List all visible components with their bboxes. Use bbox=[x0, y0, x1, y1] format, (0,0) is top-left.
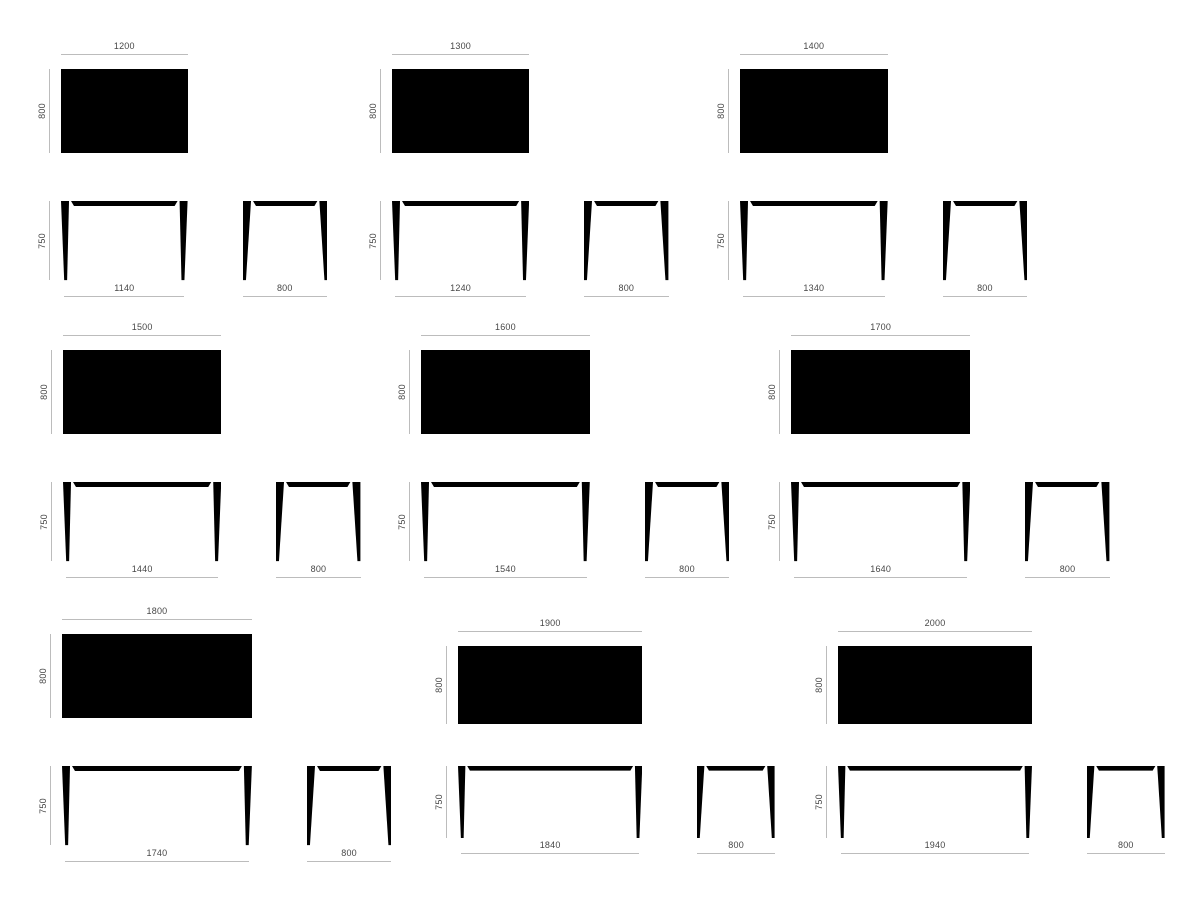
side-width-label: 800 bbox=[645, 564, 729, 575]
dimension-line bbox=[943, 296, 1027, 297]
side-width-dimension: 800 bbox=[276, 564, 360, 578]
tabletop-plan bbox=[392, 69, 529, 153]
top-width-dimension: 1400 bbox=[740, 41, 888, 55]
tabletop-plan bbox=[62, 634, 252, 718]
left-leg bbox=[1087, 766, 1094, 839]
top-depth-label: 800 bbox=[37, 103, 47, 119]
right-leg bbox=[383, 766, 391, 845]
side-elevation-drawing bbox=[307, 766, 391, 845]
base-width-dimension: 1340 bbox=[743, 283, 884, 297]
dimension-line bbox=[841, 853, 1029, 854]
side-elevation-drawing bbox=[1025, 482, 1109, 561]
tabletop-edge bbox=[253, 201, 317, 206]
top-depth-label: 800 bbox=[716, 103, 726, 119]
tabletop-plan bbox=[421, 350, 590, 434]
tabletop-plan bbox=[63, 350, 221, 434]
dimension-line bbox=[63, 335, 221, 336]
front-view: 7501740 bbox=[62, 766, 252, 861]
left-leg bbox=[740, 201, 748, 280]
left-leg bbox=[243, 201, 251, 280]
dimension-line bbox=[51, 350, 52, 434]
left-leg bbox=[838, 766, 845, 839]
tabletop-edge bbox=[467, 766, 633, 771]
side-width-label: 800 bbox=[697, 840, 775, 851]
dimension-line bbox=[65, 861, 249, 862]
dimension-line bbox=[49, 69, 50, 153]
top-view: 800 bbox=[62, 634, 252, 718]
side-width-dimension: 800 bbox=[645, 564, 729, 578]
side-view: 800 bbox=[276, 482, 360, 577]
dimension-line bbox=[380, 69, 381, 153]
table-1300-group: 13008007501240800 bbox=[366, 41, 669, 297]
side-elevation-drawing bbox=[645, 482, 729, 561]
base-width-label: 1540 bbox=[424, 564, 587, 575]
top-width-label: 1400 bbox=[740, 41, 888, 52]
side-width-label: 800 bbox=[307, 848, 391, 859]
top-width-label: 1900 bbox=[458, 618, 642, 629]
height-dimension: 750 bbox=[395, 482, 421, 561]
dimension-line bbox=[409, 482, 410, 561]
base-width-label: 1740 bbox=[65, 848, 249, 859]
right-leg bbox=[962, 482, 970, 561]
side-width-dimension: 800 bbox=[1087, 840, 1165, 854]
top-depth-label: 800 bbox=[397, 384, 407, 400]
height-label: 750 bbox=[397, 514, 407, 530]
front-elevation-drawing bbox=[392, 201, 529, 280]
height-label: 750 bbox=[37, 233, 47, 249]
dimension-line bbox=[50, 766, 51, 845]
top-depth-dimension: 800 bbox=[36, 634, 62, 718]
top-depth-dimension: 800 bbox=[812, 646, 838, 724]
top-width-dimension: 1500 bbox=[63, 322, 221, 336]
top-depth-dimension: 800 bbox=[366, 69, 392, 153]
base-width-dimension: 1840 bbox=[461, 840, 640, 854]
top-width-label: 1800 bbox=[62, 606, 252, 617]
tabletop-edge bbox=[431, 482, 580, 487]
top-depth-label: 800 bbox=[368, 103, 378, 119]
top-view: 800 bbox=[740, 69, 888, 153]
tabletop-edge bbox=[72, 766, 242, 771]
tabletop-plan bbox=[740, 69, 888, 153]
top-width-label: 1300 bbox=[392, 41, 529, 52]
dimension-line bbox=[50, 634, 51, 718]
dimension-line bbox=[794, 577, 967, 578]
right-leg bbox=[721, 482, 729, 561]
top-width-dimension: 1900 bbox=[458, 618, 642, 632]
height-dimension: 750 bbox=[36, 766, 62, 845]
base-width-label: 1340 bbox=[743, 283, 884, 294]
height-label: 750 bbox=[814, 794, 824, 810]
side-width-dimension: 800 bbox=[943, 283, 1027, 297]
top-view: 800 bbox=[421, 350, 590, 434]
base-width-dimension: 1140 bbox=[64, 283, 184, 297]
top-width-dimension: 2000 bbox=[838, 618, 1032, 632]
top-width-label: 1700 bbox=[791, 322, 970, 333]
dimension-line bbox=[458, 631, 642, 632]
front-view: 7501340 bbox=[740, 201, 888, 296]
dimension-line bbox=[61, 54, 188, 55]
side-width-dimension: 800 bbox=[697, 840, 775, 854]
top-depth-label: 800 bbox=[39, 384, 49, 400]
dimension-line bbox=[740, 54, 888, 55]
left-leg bbox=[392, 201, 400, 280]
height-dimension: 750 bbox=[765, 482, 791, 561]
table-1600-group: 16008007501540800 bbox=[395, 322, 729, 578]
right-leg bbox=[353, 482, 361, 561]
right-leg bbox=[180, 201, 188, 280]
dimension-line bbox=[791, 335, 970, 336]
dimension-line bbox=[66, 577, 218, 578]
top-depth-dimension: 800 bbox=[37, 350, 63, 434]
front-elevation-drawing bbox=[63, 482, 221, 561]
top-view: 800 bbox=[791, 350, 970, 434]
right-leg bbox=[635, 766, 642, 839]
dimension-line bbox=[838, 631, 1032, 632]
right-leg bbox=[1102, 482, 1110, 561]
left-leg bbox=[584, 201, 592, 280]
top-depth-dimension: 800 bbox=[714, 69, 740, 153]
tabletop-edge bbox=[1035, 482, 1099, 487]
side-width-dimension: 800 bbox=[243, 283, 327, 297]
left-leg bbox=[276, 482, 284, 561]
right-leg bbox=[661, 201, 669, 280]
height-dimension: 750 bbox=[35, 201, 61, 280]
dimension-line bbox=[584, 296, 668, 297]
top-depth-dimension: 800 bbox=[395, 350, 421, 434]
right-leg bbox=[319, 201, 327, 280]
table-size-dimension-sheet: 1200800750114080013008007501240800140080… bbox=[0, 0, 1200, 900]
right-leg bbox=[213, 482, 221, 561]
top-width-dimension: 1700 bbox=[791, 322, 970, 336]
left-leg bbox=[63, 482, 71, 561]
side-view: 800 bbox=[645, 482, 729, 577]
dimension-line bbox=[697, 853, 775, 854]
dimension-line bbox=[421, 335, 590, 336]
top-width-dimension: 1200 bbox=[61, 41, 188, 55]
front-view: 7501440 bbox=[63, 482, 221, 577]
tabletop-edge bbox=[286, 482, 350, 487]
left-leg bbox=[307, 766, 315, 845]
side-view: 800 bbox=[584, 201, 668, 296]
left-leg bbox=[1025, 482, 1033, 561]
table-1200-group: 12008007501140800 bbox=[35, 41, 327, 297]
dimension-line bbox=[728, 69, 729, 153]
left-leg bbox=[791, 482, 799, 561]
dimension-line bbox=[728, 201, 729, 280]
tabletop-edge bbox=[847, 766, 1023, 771]
front-view: 7501640 bbox=[791, 482, 970, 577]
left-leg bbox=[421, 482, 429, 561]
tabletop-plan bbox=[61, 69, 188, 153]
front-view: 7501540 bbox=[421, 482, 590, 577]
top-depth-dimension: 800 bbox=[432, 646, 458, 724]
right-leg bbox=[1157, 766, 1164, 839]
left-leg bbox=[458, 766, 465, 839]
side-width-label: 800 bbox=[1025, 564, 1109, 575]
tabletop-edge bbox=[707, 766, 766, 771]
top-depth-dimension: 800 bbox=[765, 350, 791, 434]
right-leg bbox=[1025, 766, 1032, 839]
front-elevation-drawing bbox=[421, 482, 590, 561]
table-1800-group: 18008007501740800 bbox=[36, 606, 391, 862]
base-width-dimension: 1640 bbox=[794, 564, 967, 578]
top-depth-dimension: 800 bbox=[35, 69, 61, 153]
front-view: 7501940 bbox=[838, 766, 1032, 855]
dimension-line bbox=[395, 296, 526, 297]
dimension-line bbox=[276, 577, 360, 578]
dimension-line bbox=[51, 482, 52, 561]
dimension-line bbox=[826, 766, 827, 839]
side-width-label: 800 bbox=[943, 283, 1027, 294]
tabletop-edge bbox=[73, 482, 211, 487]
height-dimension: 750 bbox=[812, 766, 838, 839]
dimension-line bbox=[779, 350, 780, 434]
top-width-dimension: 1600 bbox=[421, 322, 590, 336]
top-width-label: 1600 bbox=[421, 322, 590, 333]
right-leg bbox=[880, 201, 888, 280]
dimension-line bbox=[446, 766, 447, 839]
right-leg bbox=[521, 201, 529, 280]
side-elevation-drawing bbox=[1087, 766, 1165, 839]
base-width-label: 1440 bbox=[66, 564, 218, 575]
tabletop-edge bbox=[1096, 766, 1155, 771]
dimension-line bbox=[1087, 853, 1165, 854]
dimension-line bbox=[424, 577, 587, 578]
base-width-dimension: 1440 bbox=[66, 564, 218, 578]
right-leg bbox=[244, 766, 252, 845]
height-label: 750 bbox=[716, 233, 726, 249]
side-view: 800 bbox=[1087, 766, 1165, 855]
top-view: 800 bbox=[458, 646, 642, 724]
side-elevation-drawing bbox=[697, 766, 775, 839]
side-view: 800 bbox=[943, 201, 1027, 296]
side-width-label: 800 bbox=[243, 283, 327, 294]
base-width-dimension: 1740 bbox=[65, 848, 249, 862]
dimension-line bbox=[1025, 577, 1109, 578]
base-width-label: 1840 bbox=[461, 840, 640, 851]
dimension-line bbox=[743, 296, 884, 297]
right-leg bbox=[768, 766, 775, 839]
side-elevation-drawing bbox=[243, 201, 327, 280]
top-view: 800 bbox=[838, 646, 1032, 724]
top-depth-label: 800 bbox=[767, 384, 777, 400]
side-view: 800 bbox=[1025, 482, 1109, 577]
side-view: 800 bbox=[307, 766, 391, 861]
dimension-line bbox=[307, 861, 391, 862]
table-1900-group: 19008007501840800 bbox=[432, 618, 775, 854]
side-view: 800 bbox=[243, 201, 327, 296]
tabletop-edge bbox=[71, 201, 178, 206]
left-leg bbox=[62, 766, 70, 845]
top-view: 800 bbox=[61, 69, 188, 153]
tabletop-edge bbox=[801, 482, 960, 487]
tabletop-edge bbox=[594, 201, 658, 206]
side-elevation-drawing bbox=[276, 482, 360, 561]
side-width-label: 800 bbox=[584, 283, 668, 294]
top-depth-label: 800 bbox=[38, 668, 48, 684]
table-2000-group: 20008007501940800 bbox=[812, 618, 1165, 854]
front-elevation-drawing bbox=[62, 766, 252, 845]
dimension-line bbox=[446, 646, 447, 724]
side-elevation-drawing bbox=[943, 201, 1027, 280]
tabletop-edge bbox=[655, 482, 719, 487]
tabletop-edge bbox=[750, 201, 878, 206]
base-width-label: 1240 bbox=[395, 283, 526, 294]
base-width-dimension: 1940 bbox=[841, 840, 1029, 854]
top-width-dimension: 1800 bbox=[62, 606, 252, 620]
top-view: 800 bbox=[63, 350, 221, 434]
dimension-line bbox=[49, 201, 50, 280]
height-label: 750 bbox=[39, 514, 49, 530]
front-view: 7501840 bbox=[458, 766, 642, 855]
dimension-line bbox=[64, 296, 184, 297]
side-width-dimension: 800 bbox=[584, 283, 668, 297]
table-1500-group: 15008007501440800 bbox=[37, 322, 361, 578]
top-width-dimension: 1300 bbox=[392, 41, 529, 55]
front-elevation-drawing bbox=[61, 201, 188, 280]
height-label: 750 bbox=[434, 794, 444, 810]
side-width-label: 800 bbox=[1087, 840, 1165, 851]
height-label: 750 bbox=[368, 233, 378, 249]
tabletop-plan bbox=[458, 646, 642, 724]
side-width-dimension: 800 bbox=[307, 848, 391, 862]
dimension-line bbox=[461, 853, 640, 854]
tabletop-edge bbox=[402, 201, 519, 206]
right-leg bbox=[1019, 201, 1027, 280]
table-1700-group: 17008007501640800 bbox=[765, 322, 1110, 578]
side-width-dimension: 800 bbox=[1025, 564, 1109, 578]
tabletop-plan bbox=[838, 646, 1032, 724]
height-dimension: 750 bbox=[714, 201, 740, 280]
height-label: 750 bbox=[38, 798, 48, 814]
front-elevation-drawing bbox=[740, 201, 888, 280]
tabletop-plan bbox=[791, 350, 970, 434]
left-leg bbox=[61, 201, 69, 280]
base-width-label: 1640 bbox=[794, 564, 967, 575]
dimension-line bbox=[62, 619, 252, 620]
side-view: 800 bbox=[697, 766, 775, 855]
left-leg bbox=[943, 201, 951, 280]
dimension-line bbox=[243, 296, 327, 297]
top-view: 800 bbox=[392, 69, 529, 153]
front-view: 7501140 bbox=[61, 201, 188, 296]
dimension-line bbox=[409, 350, 410, 434]
base-width-dimension: 1240 bbox=[395, 283, 526, 297]
top-width-label: 1200 bbox=[61, 41, 188, 52]
dimension-line bbox=[392, 54, 529, 55]
top-width-label: 2000 bbox=[838, 618, 1032, 629]
base-width-label: 1940 bbox=[841, 840, 1029, 851]
dimension-line bbox=[826, 646, 827, 724]
side-elevation-drawing bbox=[584, 201, 668, 280]
tabletop-edge bbox=[953, 201, 1017, 206]
base-width-label: 1140 bbox=[64, 283, 184, 294]
dimension-line bbox=[645, 577, 729, 578]
table-1400-group: 14008007501340800 bbox=[714, 41, 1027, 297]
top-depth-label: 800 bbox=[434, 677, 444, 693]
right-leg bbox=[582, 482, 590, 561]
front-elevation-drawing bbox=[791, 482, 970, 561]
front-elevation-drawing bbox=[838, 766, 1032, 839]
height-dimension: 750 bbox=[37, 482, 63, 561]
dimension-line bbox=[380, 201, 381, 280]
height-dimension: 750 bbox=[366, 201, 392, 280]
dimension-line bbox=[779, 482, 780, 561]
front-view: 7501240 bbox=[392, 201, 529, 296]
top-width-label: 1500 bbox=[63, 322, 221, 333]
front-elevation-drawing bbox=[458, 766, 642, 839]
height-dimension: 750 bbox=[432, 766, 458, 839]
tabletop-edge bbox=[317, 766, 381, 771]
height-label: 750 bbox=[767, 514, 777, 530]
left-leg bbox=[645, 482, 653, 561]
left-leg bbox=[697, 766, 704, 839]
side-width-label: 800 bbox=[276, 564, 360, 575]
top-depth-label: 800 bbox=[814, 677, 824, 693]
base-width-dimension: 1540 bbox=[424, 564, 587, 578]
